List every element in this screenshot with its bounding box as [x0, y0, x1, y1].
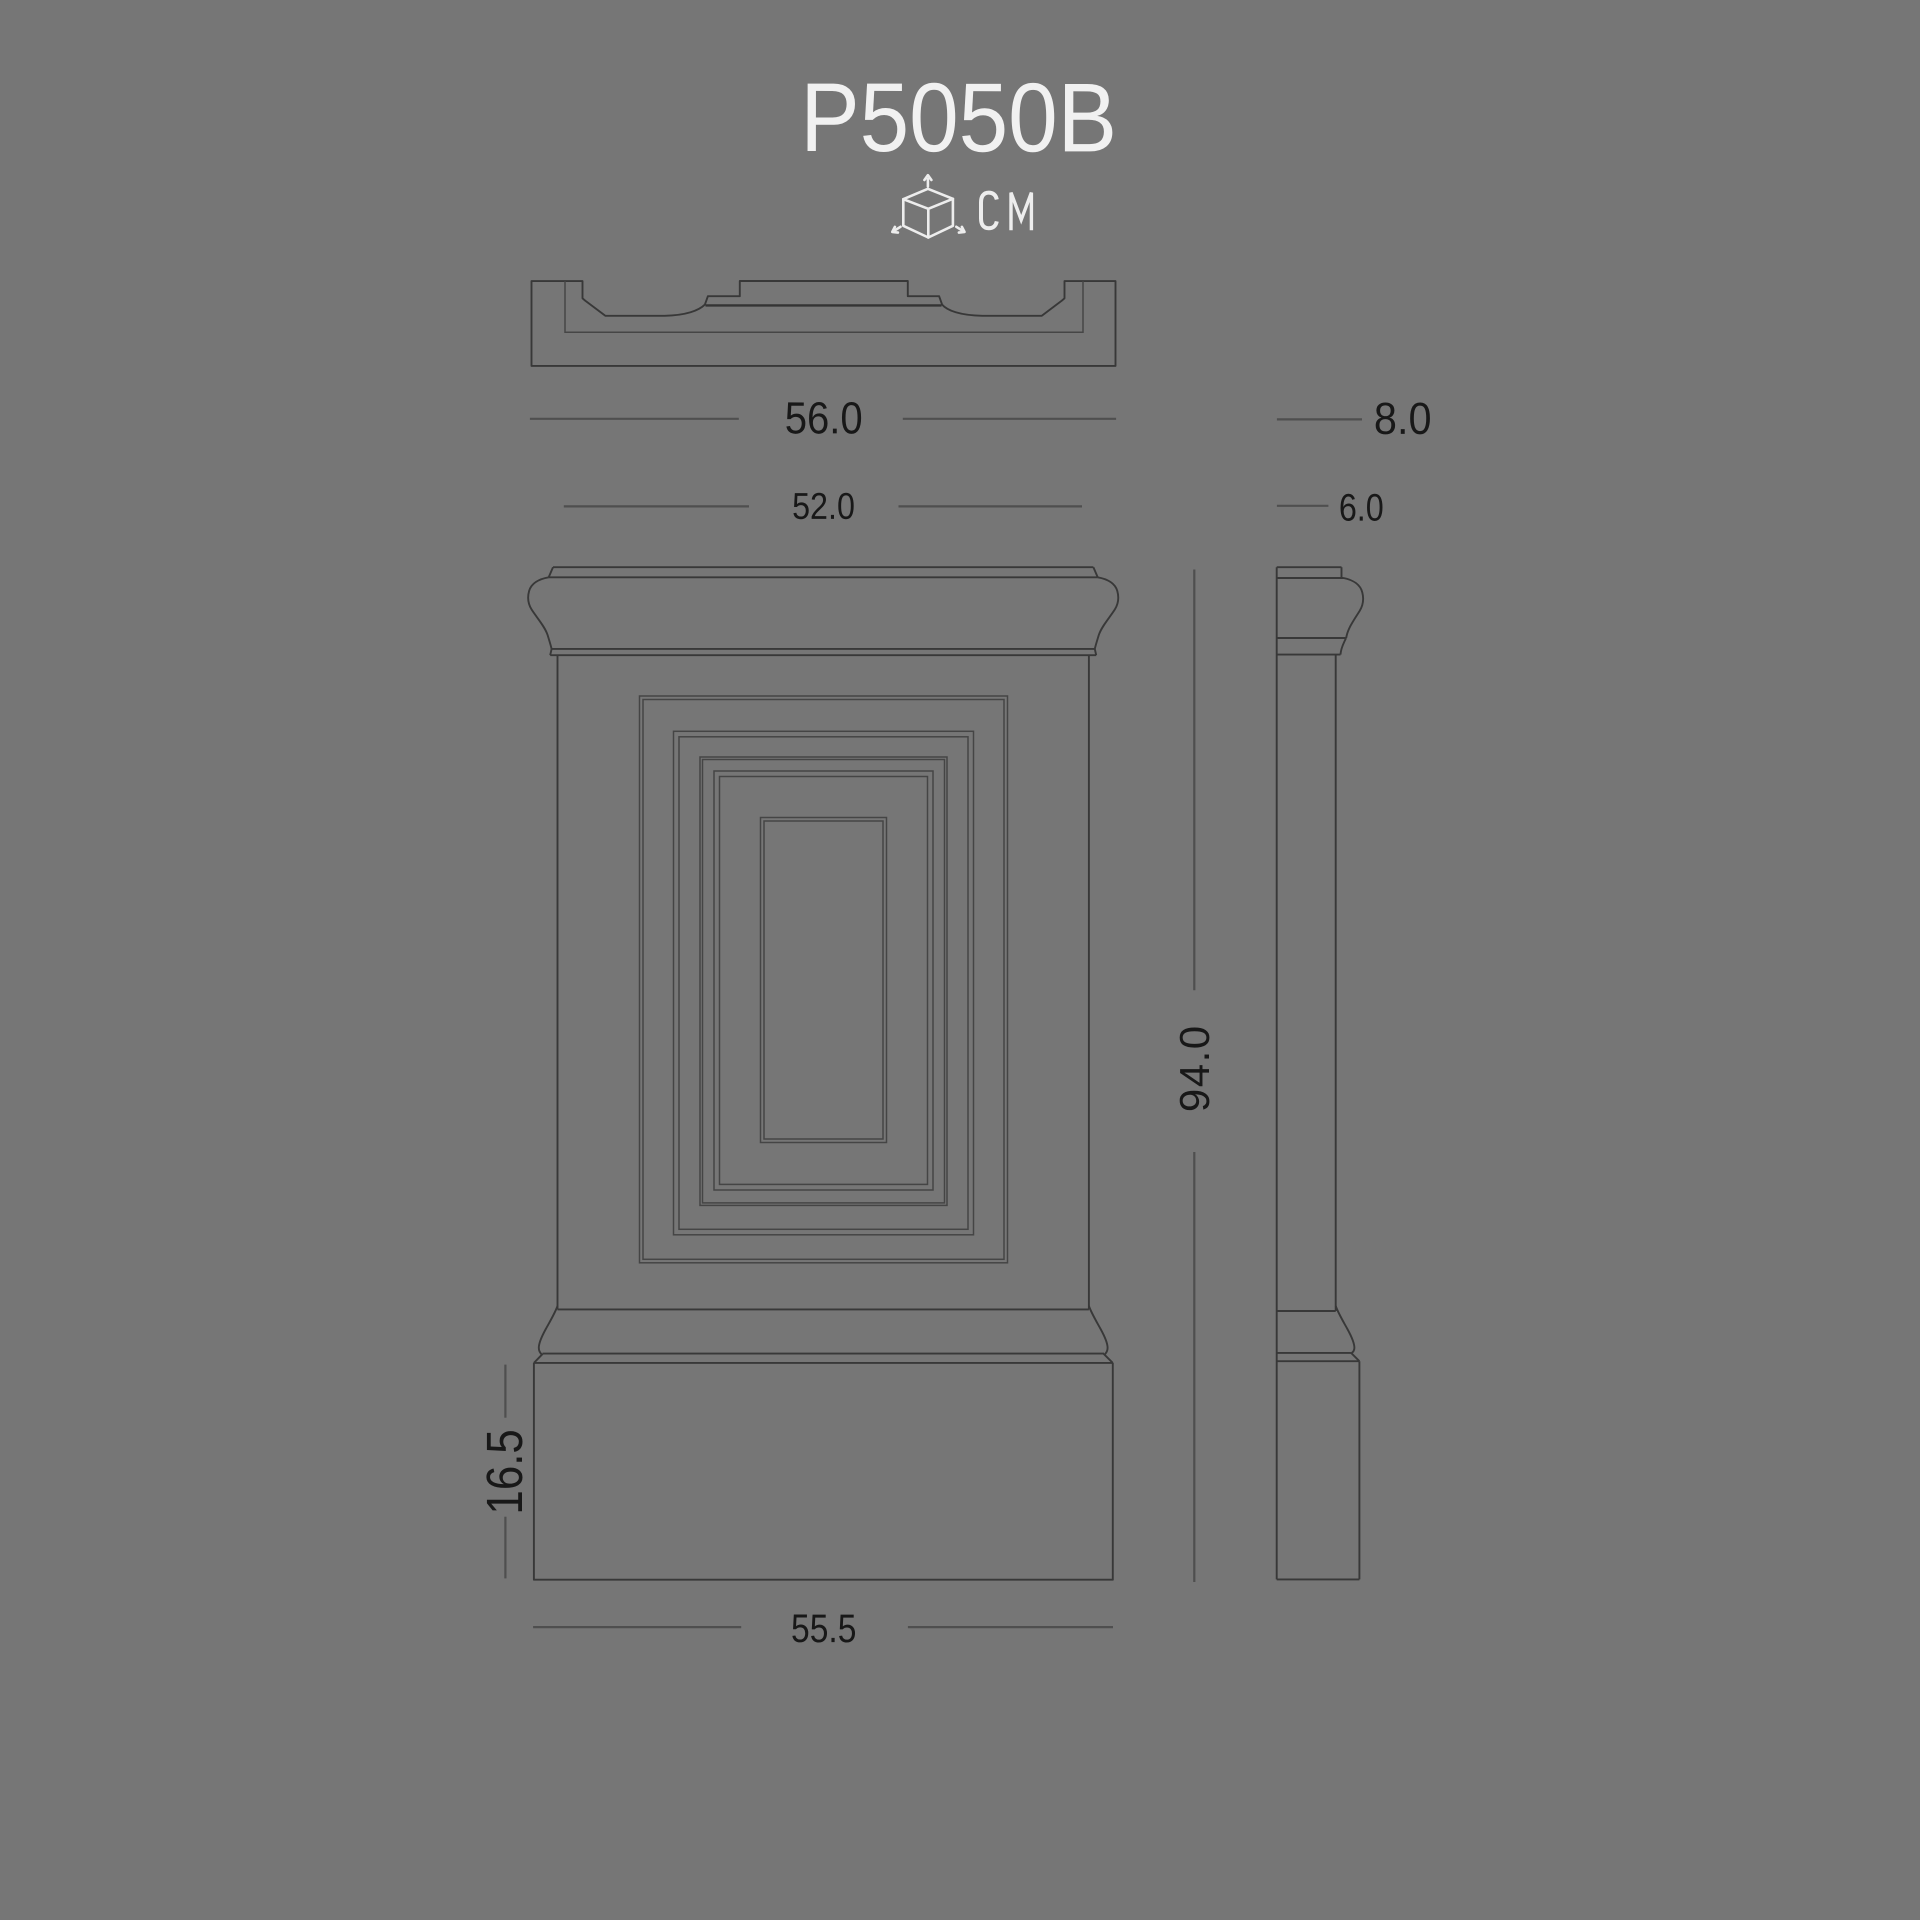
svg-text:52.0: 52.0 [792, 485, 855, 527]
svg-text:56.0: 56.0 [785, 392, 863, 443]
svg-text:8.0: 8.0 [1374, 393, 1432, 444]
svg-text:55.5: 55.5 [791, 1607, 856, 1651]
svg-text:16.5: 16.5 [476, 1429, 533, 1514]
svg-text:94.0: 94.0 [1171, 1024, 1218, 1112]
svg-text:P5050B: P5050B [800, 62, 1117, 172]
svg-text:6.0: 6.0 [1339, 487, 1384, 530]
